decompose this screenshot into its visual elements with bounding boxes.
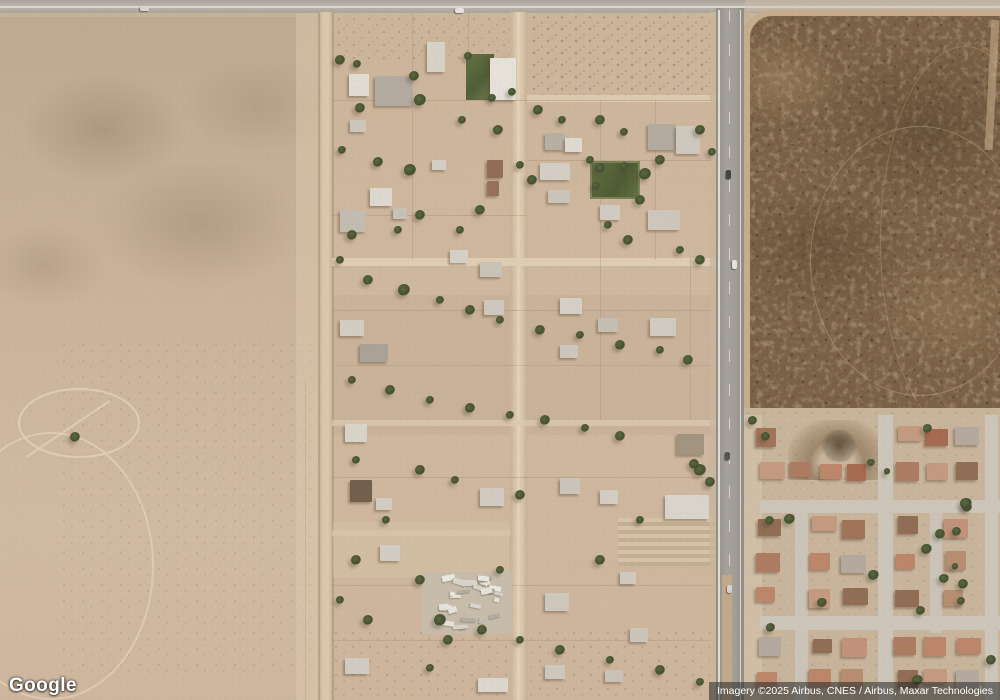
imagery-attribution-text: Imagery ©2025 Airbus, CNES / Airbus, Max… [717,685,993,697]
google-logo[interactable]: Google [9,675,77,697]
satellite-map-canvas[interactable]: Google Imagery ©2025 Airbus, CNES / Airb… [0,0,1000,700]
global-noise [0,0,1000,700]
imagery-attribution: Imagery ©2025 Airbus, CNES / Airbus, Max… [709,682,1000,700]
